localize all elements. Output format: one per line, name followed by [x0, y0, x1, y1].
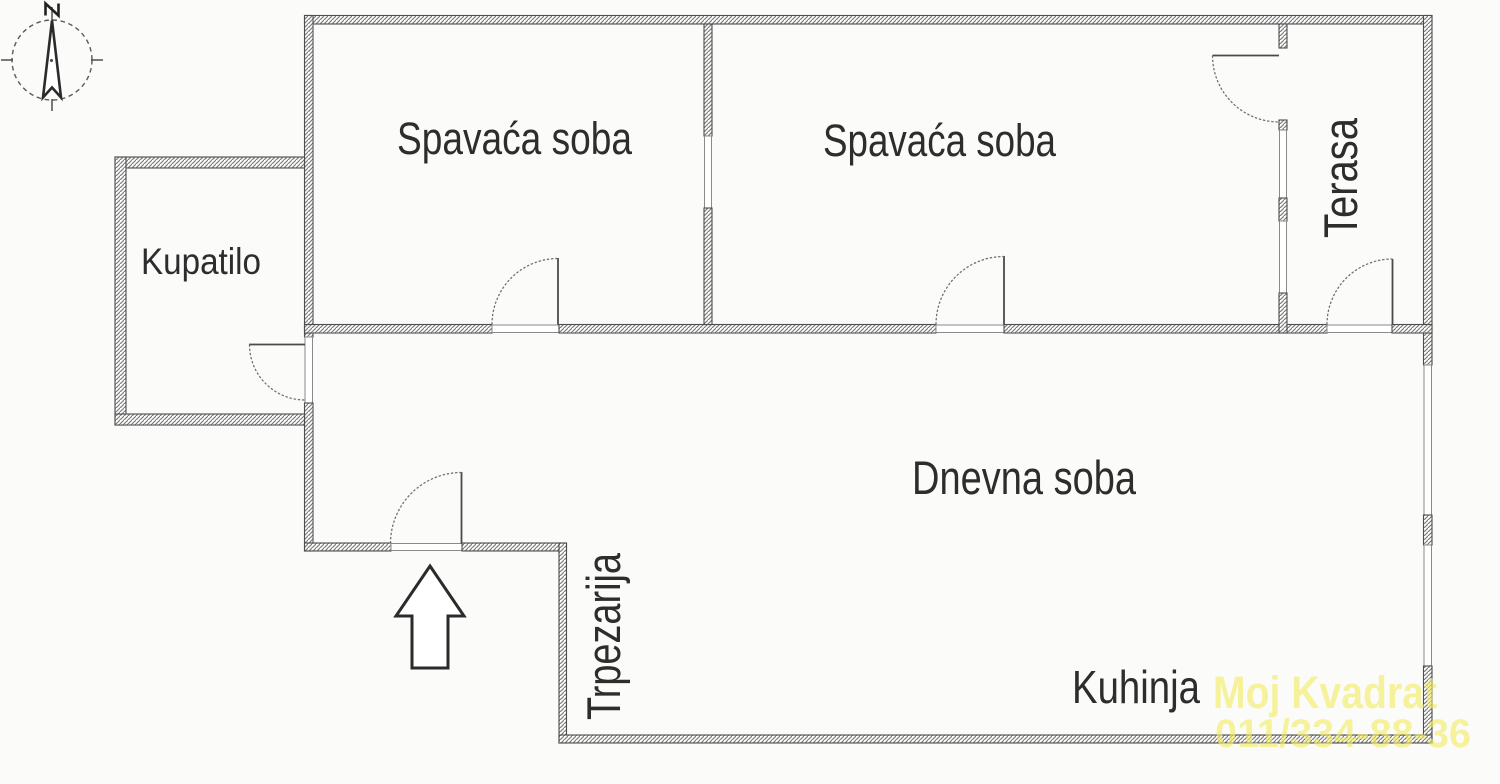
svg-text:Terasa: Terasa — [1314, 117, 1367, 238]
svg-text:Trpezarija: Trpezarija — [577, 552, 630, 720]
svg-text:011/334-88-36: 011/334-88-36 — [1215, 712, 1471, 756]
svg-text:Spavaća soba: Spavaća soba — [397, 113, 633, 164]
svg-text:Kuhinja: Kuhinja — [1072, 661, 1200, 713]
svg-text:Dnevna soba: Dnevna soba — [912, 451, 1137, 504]
svg-text:Kupatilo: Kupatilo — [141, 241, 261, 282]
svg-text:Moj Kvadrat: Moj Kvadrat — [1213, 667, 1437, 718]
svg-text:Spavaća soba: Spavaća soba — [823, 115, 1057, 166]
